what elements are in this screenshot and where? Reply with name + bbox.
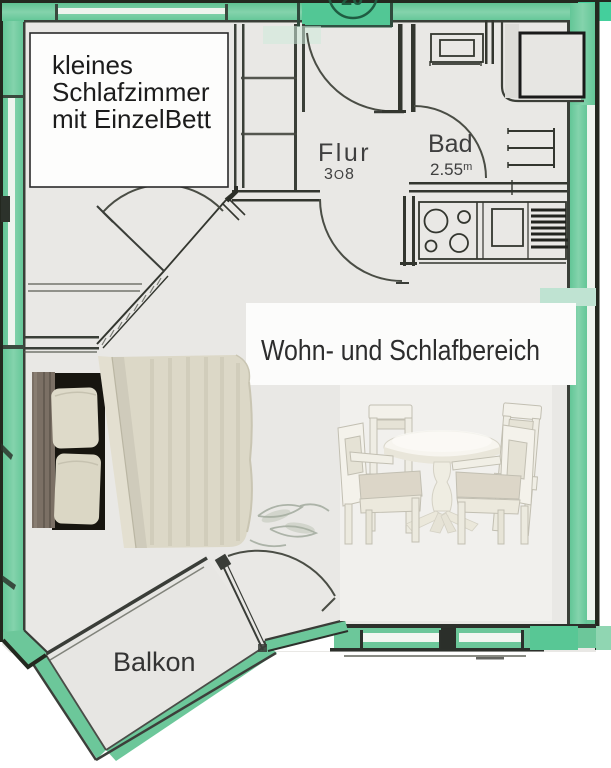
svg-text:Schlafzimmer: Schlafzimmer — [52, 77, 210, 107]
svg-text:Balkon: Balkon — [113, 647, 196, 677]
svg-text:20: 20 — [341, 0, 363, 10]
svg-text:mit EinzelBett: mit EinzelBett — [52, 104, 212, 134]
svg-text:Bad: Bad — [428, 130, 472, 158]
svg-text:Flur: Flur — [318, 139, 371, 167]
svg-text:3O8: 3O8 — [324, 166, 355, 183]
svg-text:Wohn- und Schlafbereich: Wohn- und Schlafbereich — [261, 335, 540, 367]
svg-text:kleines: kleines — [52, 50, 133, 80]
